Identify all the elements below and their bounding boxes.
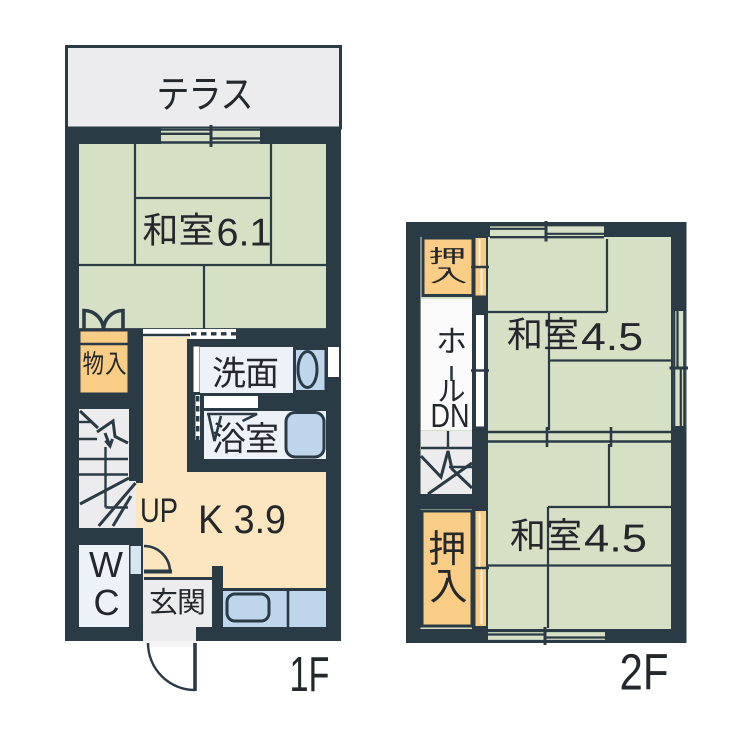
svg-text:UP: UP [140,492,178,530]
svg-text:W: W [89,544,123,585]
svg-text:4.5: 4.5 [584,518,647,561]
svg-text:6.1: 6.1 [217,212,272,255]
svg-text:4.5: 4.5 [581,316,643,359]
svg-text:2F: 2F [620,644,669,701]
svg-text:K 3.9: K 3.9 [198,498,286,542]
svg-text:DN: DN [431,397,470,434]
svg-text:C: C [94,582,120,623]
svg-text:1F: 1F [290,648,330,702]
